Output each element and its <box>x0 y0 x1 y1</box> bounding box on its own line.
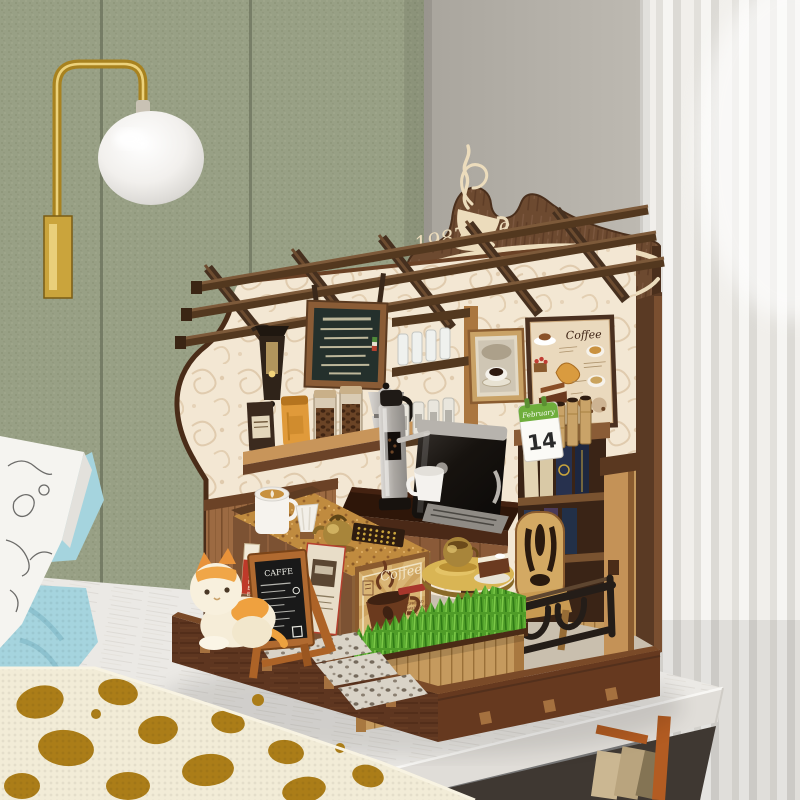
post-joint <box>608 560 619 575</box>
cat-eye <box>224 587 229 592</box>
dessert-board-title: Coffee <box>566 328 603 342</box>
lamp-globe-highlight <box>114 129 146 149</box>
bean-jar <box>314 390 336 442</box>
bean-jar <box>340 386 362 438</box>
lamp-mount <box>44 216 72 298</box>
coffee-picture-frame <box>469 329 525 403</box>
beam-end <box>175 336 186 349</box>
railing-post <box>610 578 612 634</box>
calendar-day: 14 <box>526 428 558 455</box>
coffee-bag <box>281 395 311 446</box>
lamp-mount-highlight <box>49 224 57 290</box>
coffee-box <box>247 401 275 450</box>
beam-end <box>181 308 192 321</box>
sconce-glass <box>266 342 278 374</box>
beam-end <box>191 281 202 294</box>
bedroom-photo: 1987cafe <box>0 0 800 800</box>
cat-eye <box>204 589 209 594</box>
chalkboard-leg <box>304 644 308 666</box>
scene-svg: 1987cafe <box>0 0 800 800</box>
chalkboard-leg <box>253 648 257 678</box>
lamp-globe <box>98 111 204 205</box>
cat-paw <box>199 636 229 650</box>
right-wall-edge-face <box>654 296 662 652</box>
sconce-flame <box>269 371 276 378</box>
